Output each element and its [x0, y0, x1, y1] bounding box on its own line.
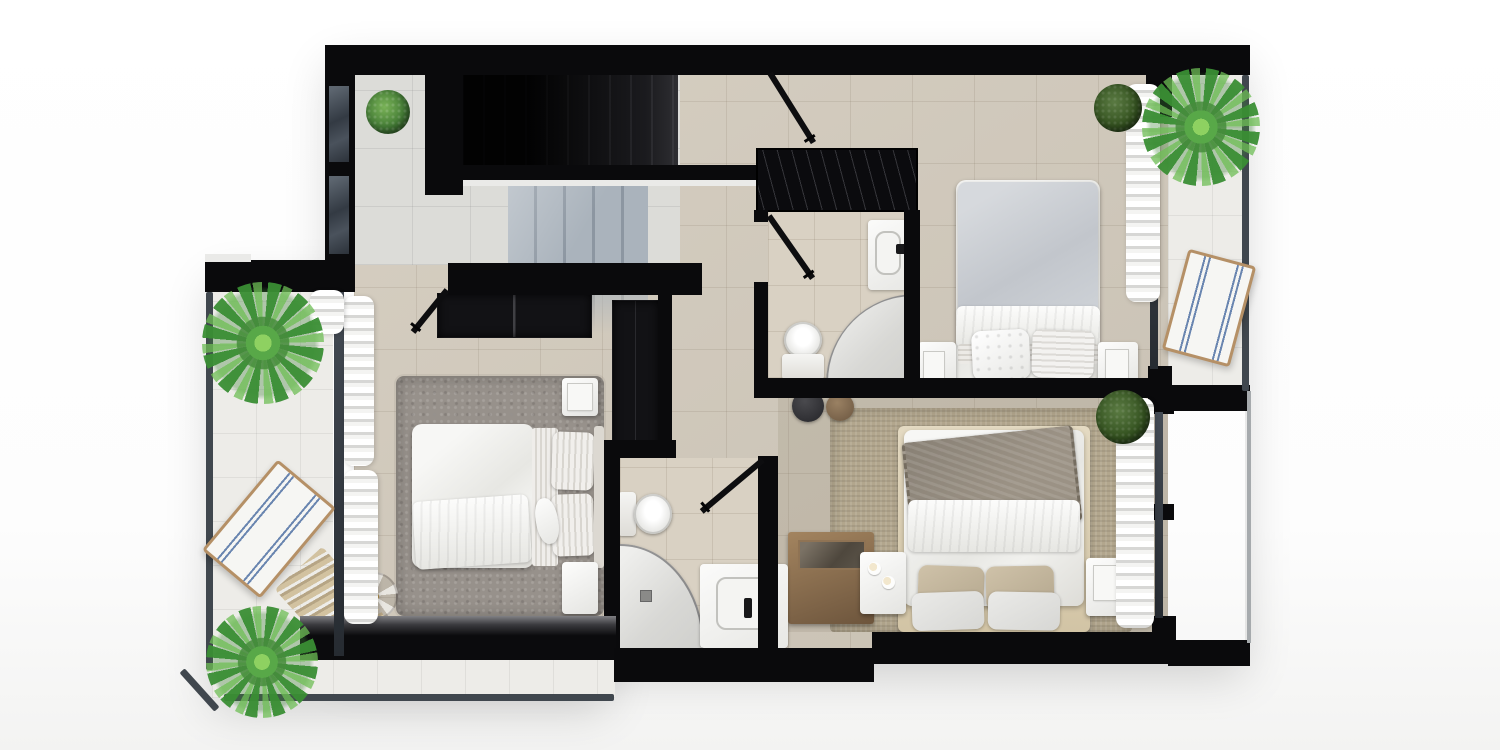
- plant-bedroom3-window: [1096, 390, 1150, 444]
- bed3-folded-sheet: [908, 500, 1080, 552]
- closet-clothes-bathroom-top: [756, 148, 918, 212]
- media-unit-bedroom1: [612, 300, 660, 458]
- window-glazing-left-upper: [329, 86, 349, 162]
- wall-bathroom-top-left-a: [754, 210, 768, 222]
- wall-bathroom-top-left-b: [754, 282, 768, 390]
- faucet-bathroom-bottom: [744, 598, 752, 618]
- roof-edge-line-right: [1247, 391, 1251, 643]
- window-line-bedroom1-balcony: [334, 292, 344, 656]
- cup-bedroom3-b: [882, 576, 895, 589]
- bed3-pillow-gray-left: [911, 591, 984, 631]
- palm-balcony-right: [1142, 68, 1260, 186]
- art-card-bedroom1: [568, 384, 592, 410]
- bed2-pillow-striped: [1031, 329, 1095, 379]
- bed1-pillow-striped-top: [551, 431, 595, 490]
- staircase-upper-flight: [462, 72, 678, 168]
- floor-plan-stage: [0, 0, 1500, 750]
- mirror-bedroom3: [798, 540, 866, 570]
- bed2-pillow-tufted: [971, 329, 1032, 382]
- cup-bedroom3-a: [868, 562, 881, 575]
- curtain-bedroom1-upper: [344, 296, 374, 466]
- toilet-bowl-bathroom-top: [784, 322, 822, 358]
- shower-drain-bathroom-bottom: [640, 590, 652, 602]
- toilet-bowl-bathroom-bottom: [634, 494, 672, 534]
- wall-bedroom1-right: [658, 293, 672, 445]
- bed2-duvet-gray: [958, 182, 1098, 314]
- wall-bedroom1-top: [448, 263, 702, 295]
- palm-balcony-left-bottom: [206, 606, 318, 718]
- bed1-folded-sheet: [412, 494, 532, 570]
- wall-top-exterior: [325, 45, 1250, 75]
- window-line-bedroom3-right: [1155, 412, 1163, 618]
- curtain-bedroom1-lower: [344, 470, 378, 624]
- bed1-headboard: [594, 426, 604, 568]
- wall-bathroom-bottom-right: [758, 456, 778, 656]
- wall-bottom-mid-exterior: [614, 648, 874, 682]
- art-card-bedroom2-left: [924, 352, 944, 380]
- window-post-bedroom3-bottom: [1152, 616, 1176, 640]
- wall-bathroom-top-right: [904, 210, 920, 392]
- palm-balcony-left-top: [202, 282, 324, 404]
- roof-cap-balcony-left: [205, 254, 251, 262]
- wall-balcony-right-bottom: [1164, 385, 1250, 411]
- potted-plant-entry: [366, 90, 410, 134]
- art-card-bedroom3: [1094, 566, 1118, 600]
- wall-stair-left: [425, 75, 463, 195]
- toilet-tank-bathroom-top: [782, 354, 824, 380]
- staircase-bottom-wall: [462, 165, 775, 180]
- wall-bottom-left-exterior: [300, 616, 616, 660]
- art-card-bedroom2-right: [1106, 350, 1128, 380]
- wardrobe-bedroom1-top: [437, 293, 592, 338]
- wall-bottom-bedroom3-exterior: [872, 632, 1172, 664]
- sink-vanity-bathroom-top: [868, 220, 908, 290]
- bed3-pillow-gray-right: [988, 591, 1061, 630]
- window-glazing-left-lower: [329, 176, 349, 254]
- nightstand-bedroom1-bottom: [562, 562, 598, 614]
- wall-bottom-right-exterior: [1168, 640, 1250, 666]
- plant-bedroom2-corner: [1094, 84, 1142, 132]
